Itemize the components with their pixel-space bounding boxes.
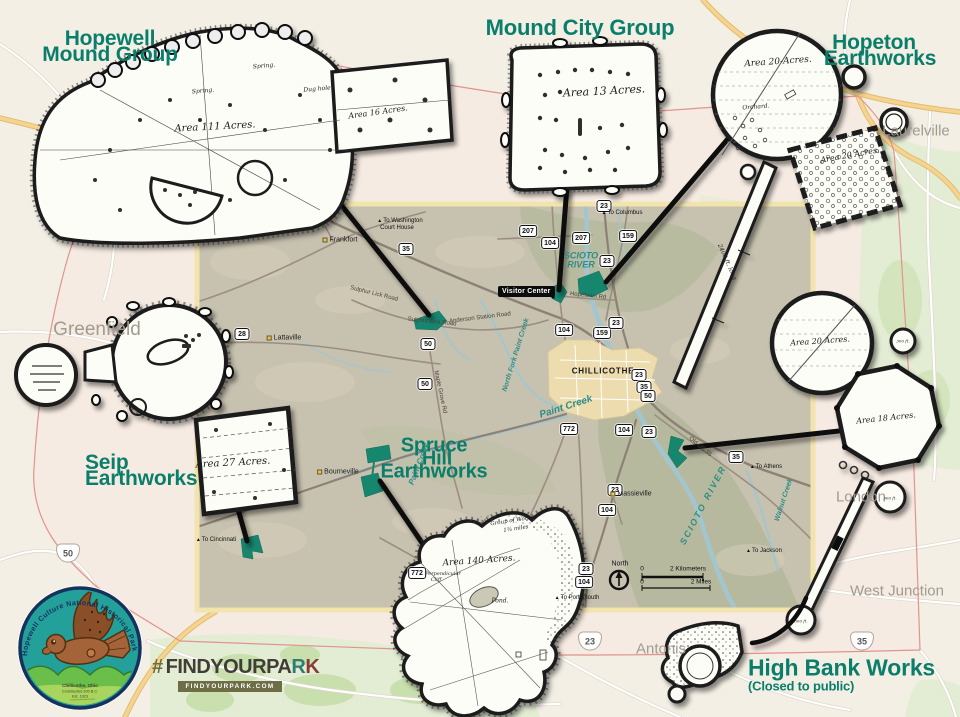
logo-built-text: Constructed 200 B.C. [62,690,98,694]
direction-arrow-icon: ▲ [555,595,560,601]
direction-label: ▲To Washington [377,218,422,224]
outside-town-label: West Junction [850,583,944,600]
route-shield-159: 159 [593,327,611,339]
high-bank-note: (Closed to public) [748,679,854,694]
scale-km: 2 Kilometers [670,566,706,573]
chillicothe-label: CHILLICOTHE [572,367,635,376]
waterway-label: SCIOTO RIVER [561,252,601,271]
scale-mi: 2 Miles [691,579,712,586]
hopewell-title-line2: Mound Group [42,43,177,67]
town-dot [610,491,615,496]
direction-label: Court House [380,225,414,231]
route-shield-159: 159 [619,230,637,242]
scale-zero-km: 0 [640,566,644,573]
route-shield-23: 23 [642,426,657,438]
route-shield-772: 772 [408,567,426,579]
survey-area-label: Pond. [491,598,508,605]
route-shield-50: 50 [418,378,433,390]
scale-zero-mi: 0 [640,579,644,586]
direction-arrow-icon: ▲ [196,537,201,543]
route-shield-50: 50 [641,390,656,402]
outside-town-label: Laurelville [882,123,950,140]
route-shield-207: 207 [519,225,537,237]
direction-label: ▲To Columbus [602,210,643,216]
direction-label: ▲To Cincinnati [196,537,236,543]
town-label: Lattaville [267,335,302,342]
town-dot [322,237,327,242]
direction-label: ▲To Portsmouth [555,595,600,601]
town-label: Frankfort [322,237,357,244]
town-label: Bourneville [317,469,359,476]
route-shield-23: 23 [609,317,624,329]
spruce-title-line3: Earthworks [381,461,488,484]
hopeton-title-line2: Earthworks [824,47,936,71]
route-shield-23: 23 [579,563,594,575]
route-shield-104: 104 [575,576,593,588]
town-label: Massieville [610,491,651,498]
survey-area-label: Cliff [431,577,442,583]
survey-area-label: 300 ft. [883,496,896,501]
route-shield-23: 23 [632,369,647,381]
visitor-center-arrow-icon: ► [549,289,556,296]
logo-town-text: Chillicothe, Ohio [62,683,98,688]
route-shield-207: 207 [572,232,590,244]
findyourpark-main: FINDYOURPA [166,656,292,678]
route-shield-772: 772 [560,423,578,435]
map-graphics: Hopewell Culture National Historical Par… [0,0,960,717]
direction-label: ▲To Jackson [746,548,782,554]
route-shield-23: 23 [600,255,615,267]
logo-est-text: Est. 1923 [72,695,88,699]
mound-city-title: Mound City Group [486,15,675,41]
route-shield-35: 35 [729,451,744,463]
survey-area-label: 300 ft. [896,339,909,344]
route-shield-104: 104 [555,324,573,336]
visitor-center-label: Visitor Center [498,286,555,297]
town-dot [317,469,322,474]
route-shield-28: 28 [235,328,250,340]
seip-title-line2: Earthworks [85,467,197,491]
route-shield-104: 104 [541,237,559,249]
outside-town-label: Greenfield [53,319,141,341]
findyourpark-url: FINDYOURPARK.COM [178,681,282,692]
high-bank-small-drawing [662,623,742,702]
findyourpark-hash: # [152,656,163,678]
outside-town-label: London [836,489,886,506]
north-label: North [611,561,628,568]
direction-arrow-icon: ▲ [750,464,755,470]
direction-arrow-icon: ▲ [377,218,382,224]
route-shield-50: 50 [421,338,436,350]
direction-arrow-icon: ▲ [602,210,607,216]
route-shield-104: 104 [615,424,633,436]
findyourpark-k: K [305,656,319,678]
survey-area-label: 300 ft. [794,619,807,624]
mound-city-drawing [501,37,667,196]
direction-arrow-icon: ▲ [746,548,751,554]
route-shield-35: 35 [399,243,414,255]
direction-label: ▲To Athens [750,464,782,470]
high-bank-title: High Bank Works [748,655,935,682]
park-map-page: Hopewell Culture National Historical Par… [0,0,960,717]
outside-town-label: Antonis [636,641,686,658]
findyourpark-r: R [291,656,305,678]
town-dot [267,335,272,340]
findyourpark-logo: #FINDYOURPARK [152,656,319,679]
route-shield-104: 104 [598,504,616,516]
